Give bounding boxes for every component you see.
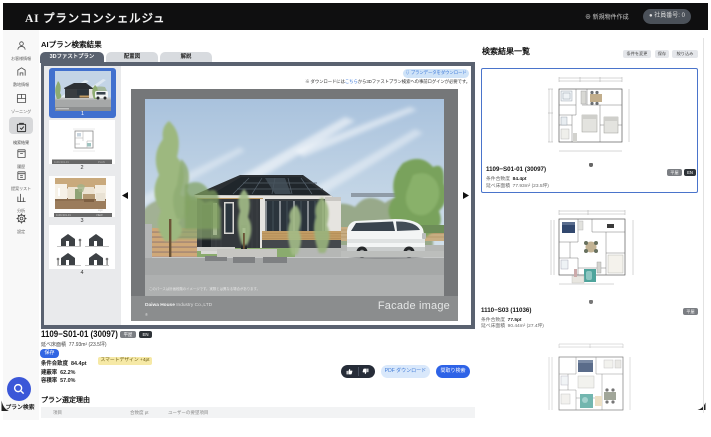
svg-text:1109-S01-01: 1109-S01-01 [54,160,69,164]
svg-text:このパースは計画段階のイメージです。実際とは異なる場合があり: このパースは計画段階のイメージです。実際とは異なる場合があります。 [149,286,260,291]
svg-text:PLAN: PLAN [98,160,105,164]
